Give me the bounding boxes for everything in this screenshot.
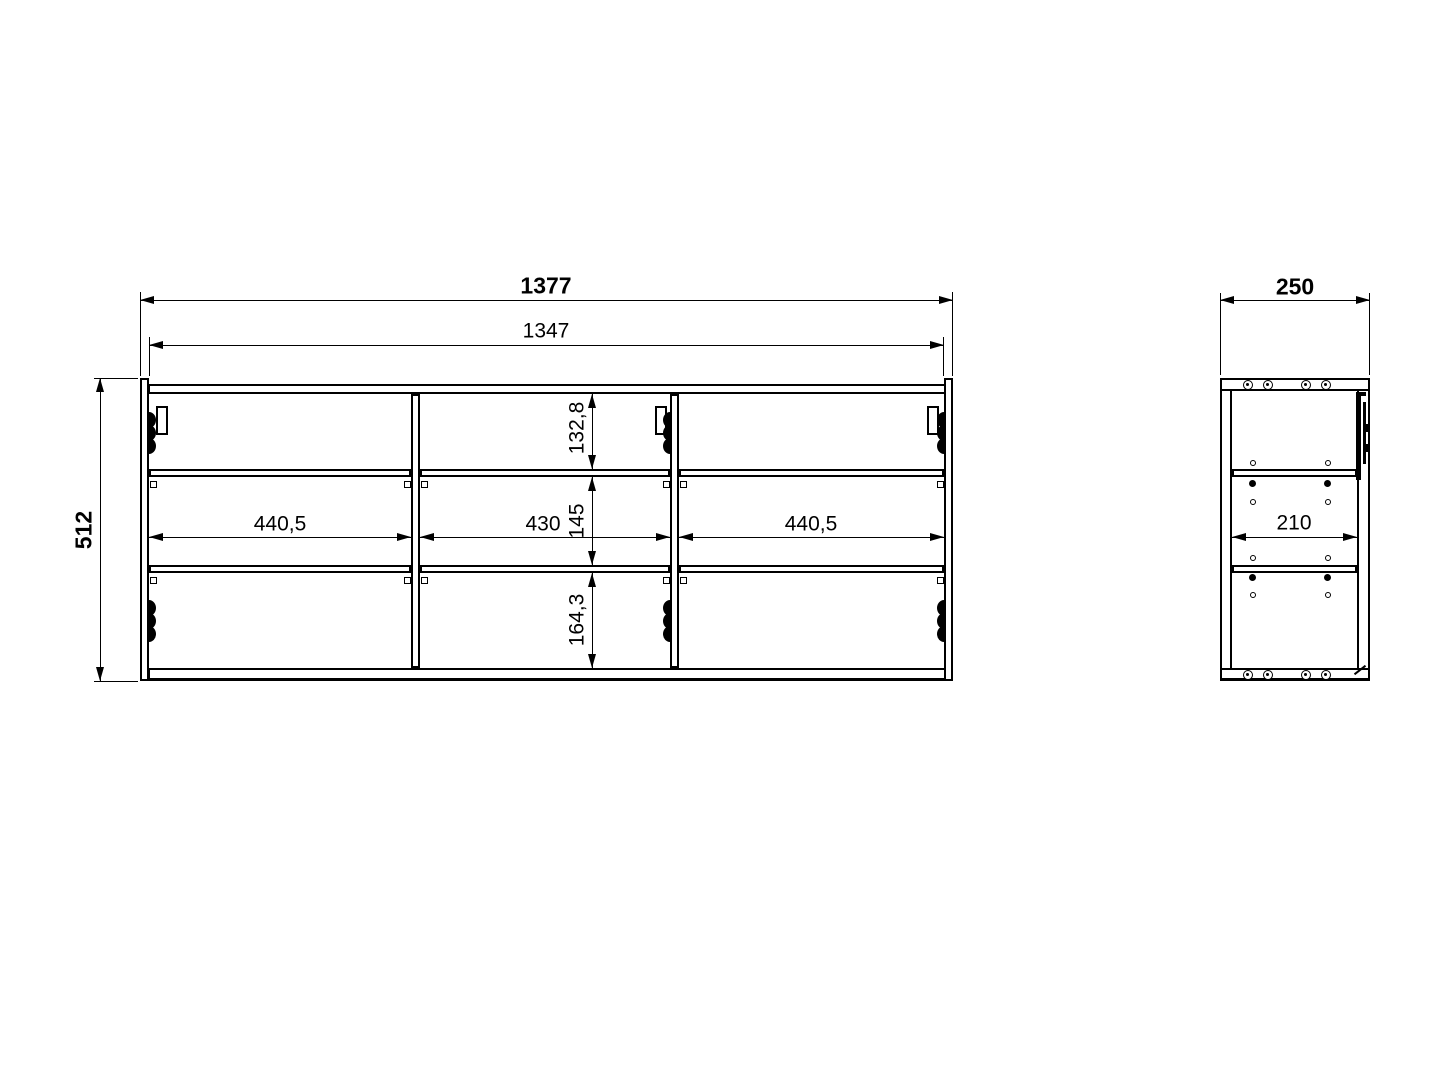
shelf-pin bbox=[150, 577, 157, 584]
extension-line bbox=[140, 292, 141, 376]
door-hinge-icon bbox=[936, 600, 944, 642]
shelf-pin bbox=[937, 577, 944, 584]
screw-icon bbox=[1243, 380, 1253, 390]
shelf bbox=[679, 565, 944, 573]
shelf bbox=[149, 565, 411, 573]
dim-label-inner-depth: 210 bbox=[1276, 513, 1311, 534]
door-hinge-icon bbox=[662, 600, 670, 642]
cabinet-top-panel bbox=[148, 384, 946, 394]
dimension-arrow bbox=[140, 296, 154, 304]
screw-icon bbox=[1263, 380, 1273, 390]
dimension-arrow bbox=[96, 378, 104, 392]
screw-icon bbox=[1321, 670, 1331, 680]
dimension-arrow bbox=[1343, 533, 1357, 541]
dimension-arrow bbox=[930, 533, 944, 541]
hinge-side-profile bbox=[1366, 424, 1369, 432]
dimension-line bbox=[679, 537, 944, 538]
dim-label-shelf-spacing-3: 164,3 bbox=[567, 594, 588, 647]
door-hinge-icon bbox=[149, 412, 157, 454]
dimension-arrow bbox=[1220, 296, 1234, 304]
door-hinge-icon bbox=[662, 412, 670, 454]
dowel-hole-icon bbox=[1325, 499, 1331, 505]
dowel-hole-icon bbox=[1325, 460, 1331, 466]
dimension-arrow bbox=[588, 551, 596, 565]
dowel-hole-icon bbox=[1250, 555, 1256, 561]
dimension-arrow bbox=[1232, 533, 1246, 541]
dim-label-overall-height: 512 bbox=[73, 511, 96, 549]
hinge-side-profile bbox=[1356, 396, 1361, 480]
dim-label-overall-depth: 250 bbox=[1276, 276, 1314, 299]
shelf bbox=[420, 469, 670, 477]
dimension-arrow bbox=[588, 654, 596, 668]
technical-drawing-canvas: 1377 1347 512 440,5 430 440,5 bbox=[0, 0, 1450, 1087]
side-back-panel bbox=[1220, 378, 1232, 681]
shelf bbox=[149, 469, 411, 477]
door-hinge-icon bbox=[936, 412, 944, 454]
dim-label-compartment-width-2: 430 bbox=[525, 514, 560, 535]
dimension-line bbox=[149, 345, 944, 346]
dim-label-shelf-spacing-1: 132,8 bbox=[567, 402, 588, 455]
screw-icon bbox=[1243, 670, 1253, 680]
side-shelf bbox=[1232, 469, 1357, 477]
shelf-pin bbox=[404, 481, 411, 488]
dimension-arrow bbox=[149, 341, 163, 349]
hinge-side-profile bbox=[1366, 444, 1369, 452]
dimension-line bbox=[1232, 537, 1357, 538]
cabinet-side-panel-right bbox=[944, 378, 953, 681]
dimension-line bbox=[149, 537, 411, 538]
dimension-arrow bbox=[149, 533, 163, 541]
extension-line bbox=[1369, 293, 1370, 375]
dowel-hole-icon bbox=[1250, 592, 1256, 598]
shelf-pin bbox=[680, 577, 687, 584]
dimension-arrow bbox=[588, 394, 596, 408]
dowel-pin-icon bbox=[1249, 480, 1256, 487]
dimension-arrow bbox=[397, 533, 411, 541]
dim-label-inner-width: 1347 bbox=[523, 321, 570, 342]
dimension-line bbox=[420, 537, 670, 538]
extension-line bbox=[94, 681, 138, 682]
cabinet-side-panel-left bbox=[140, 378, 149, 681]
dimension-arrow bbox=[588, 455, 596, 469]
dimension-arrow bbox=[1356, 296, 1370, 304]
dowel-hole-icon bbox=[1250, 460, 1256, 466]
dowel-hole-icon bbox=[1325, 592, 1331, 598]
dimension-arrow bbox=[96, 667, 104, 681]
shelf-pin bbox=[150, 481, 157, 488]
dim-label-compartment-width-3: 440,5 bbox=[785, 514, 838, 535]
shelf-pin bbox=[663, 481, 670, 488]
dowel-pin-icon bbox=[1324, 574, 1331, 581]
dimension-line bbox=[140, 300, 953, 301]
shelf bbox=[679, 469, 944, 477]
dimension-arrow bbox=[939, 296, 953, 304]
screw-icon bbox=[1301, 380, 1311, 390]
dimension-arrow bbox=[679, 533, 693, 541]
dim-label-shelf-spacing-2: 145 bbox=[567, 503, 588, 538]
center-divider-right bbox=[670, 394, 679, 668]
dowel-hole-icon bbox=[1250, 499, 1256, 505]
side-shelf bbox=[1232, 565, 1357, 573]
shelf-pin bbox=[663, 577, 670, 584]
dimension-arrow bbox=[588, 573, 596, 587]
screw-icon bbox=[1301, 670, 1311, 680]
dimension-arrow bbox=[656, 533, 670, 541]
cabinet-bottom-panel bbox=[148, 668, 946, 681]
extension-line bbox=[952, 292, 953, 376]
screw-icon bbox=[1321, 380, 1331, 390]
shelf bbox=[420, 565, 670, 573]
shelf-pin bbox=[421, 481, 428, 488]
shelf-pin bbox=[404, 577, 411, 584]
dowel-pin-icon bbox=[1324, 480, 1331, 487]
dimension-arrow bbox=[420, 533, 434, 541]
dowel-pin-icon bbox=[1249, 574, 1256, 581]
extension-line bbox=[1220, 293, 1221, 375]
center-divider-left bbox=[411, 394, 420, 668]
shelf-pin bbox=[937, 481, 944, 488]
dowel-hole-icon bbox=[1325, 555, 1331, 561]
shelf-pin bbox=[421, 577, 428, 584]
dim-label-overall-width: 1377 bbox=[520, 275, 571, 298]
hinge-mounting-plate bbox=[156, 406, 168, 435]
hinge-side-profile bbox=[1363, 402, 1366, 464]
dim-label-compartment-width-1: 440,5 bbox=[254, 514, 307, 535]
dimension-line bbox=[100, 378, 101, 681]
dimension-line bbox=[1220, 300, 1370, 301]
dimension-arrow bbox=[588, 477, 596, 491]
screw-icon bbox=[1263, 670, 1273, 680]
door-hinge-icon bbox=[149, 600, 157, 642]
shelf-pin bbox=[680, 481, 687, 488]
dimension-arrow bbox=[930, 341, 944, 349]
